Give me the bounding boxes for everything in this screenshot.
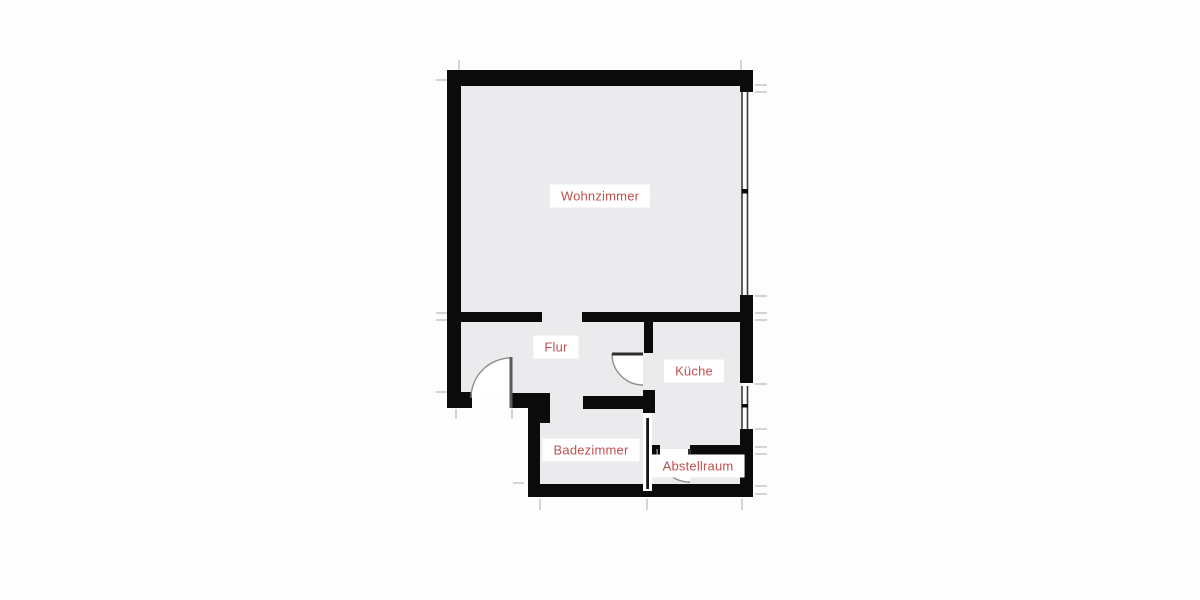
wall-divider-wohnzimmer-right bbox=[582, 312, 753, 322]
room-label-badezimmer: Badezimmer bbox=[543, 439, 640, 462]
window-kueche-center-tick bbox=[742, 404, 749, 408]
wall-exterior-left bbox=[447, 70, 461, 408]
wall-flur-badezimmer bbox=[583, 396, 652, 409]
wall-flur-bottom-left bbox=[510, 393, 550, 408]
wall-exterior-top bbox=[447, 70, 753, 86]
floor-areas bbox=[461, 86, 742, 484]
wall-divider-wohnzimmer-left bbox=[447, 312, 542, 322]
wall-flur-kueche-block bbox=[643, 390, 655, 413]
floor-plan-drawing bbox=[0, 0, 1200, 600]
window-wohnzimmer-center-tick bbox=[742, 189, 749, 194]
kitchen-door-leaf bbox=[612, 353, 643, 356]
wall-exterior-right-top bbox=[740, 70, 753, 92]
sliding-door-leaf bbox=[646, 418, 649, 489]
wall-exterior-right-mid bbox=[740, 295, 753, 383]
wall-badezimmer-left bbox=[528, 408, 540, 497]
floor-plan: Wohnzimmer Flur Küche Badezimmer Abstell… bbox=[0, 0, 1200, 600]
room-label-kueche: Küche bbox=[664, 360, 724, 383]
room-label-flur: Flur bbox=[533, 336, 578, 359]
wall-flur-kueche-top bbox=[644, 322, 653, 353]
wall-exterior-bottom bbox=[528, 484, 753, 497]
wall-entrance-left-block bbox=[447, 392, 472, 408]
room-label-abstellraum: Abstellraum bbox=[652, 455, 745, 478]
room-label-wohnzimmer: Wohnzimmer bbox=[550, 185, 650, 208]
entrance-door-leaf bbox=[510, 357, 513, 408]
wall-abstellraum-top bbox=[690, 445, 753, 455]
